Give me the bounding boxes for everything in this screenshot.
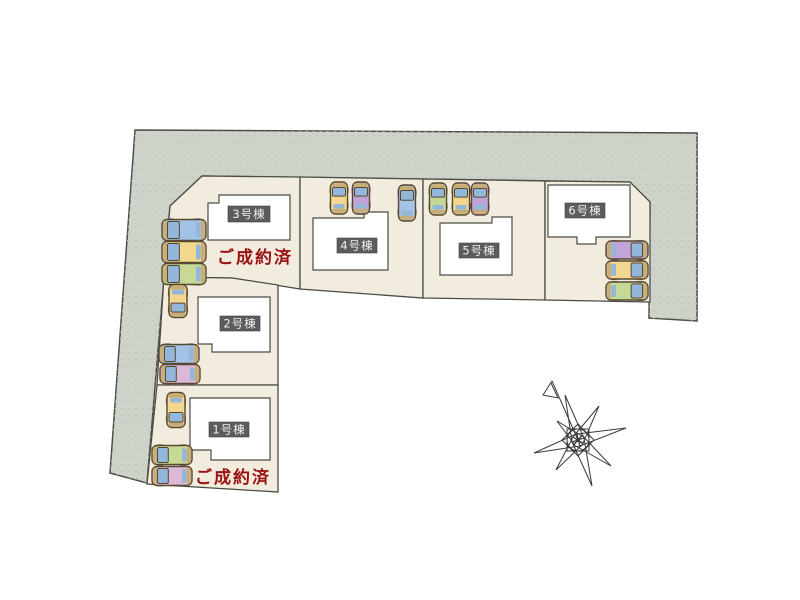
building-label-4: 4号棟 <box>337 238 377 253</box>
car-icon <box>162 240 206 263</box>
car-icon <box>159 343 199 364</box>
car-icon <box>452 183 471 215</box>
car-icon <box>606 260 648 280</box>
building-label-text: 3号棟 <box>232 207 265 221</box>
compass-north-icon <box>534 381 626 486</box>
car-icon <box>330 182 349 214</box>
car-icon <box>352 182 371 214</box>
site-plan-image: 3号棟 4号棟 5号棟 6号棟 2号棟 1号棟 ご成約済 ご成約済 <box>0 0 800 600</box>
building-label-text: 4号棟 <box>340 239 373 253</box>
car-icon <box>429 183 448 215</box>
building-label-text: 5号棟 <box>462 244 495 258</box>
car-icon <box>606 240 648 260</box>
car-icon <box>152 444 192 465</box>
car-icon <box>152 465 192 486</box>
car-icon <box>162 262 206 285</box>
sold-label-building-3: ご成約済 <box>217 247 293 268</box>
car-icon <box>606 281 648 301</box>
car-icon <box>162 218 206 241</box>
building-label-3: 3号棟 <box>228 206 270 222</box>
sold-label-building-1: ご成約済 <box>195 467 271 488</box>
car-icon <box>398 185 417 221</box>
building-label-6: 6号棟 <box>565 203 605 218</box>
building-label-5: 5号棟 <box>459 243 499 258</box>
car-icon <box>168 285 188 318</box>
building-label-text: 6号棟 <box>568 204 601 218</box>
site-plan-svg: 3号棟 4号棟 5号棟 6号棟 2号棟 1号棟 ご成約済 ご成約済 <box>0 0 800 600</box>
car-icon <box>160 363 200 384</box>
car-icon <box>471 183 490 215</box>
car-icon <box>166 393 186 428</box>
building-label-2: 2号棟 <box>220 316 260 331</box>
building-label-1: 1号棟 <box>209 422 249 437</box>
building-label-text: 1号棟 <box>212 423 245 437</box>
building-label-text: 2号棟 <box>223 317 256 331</box>
